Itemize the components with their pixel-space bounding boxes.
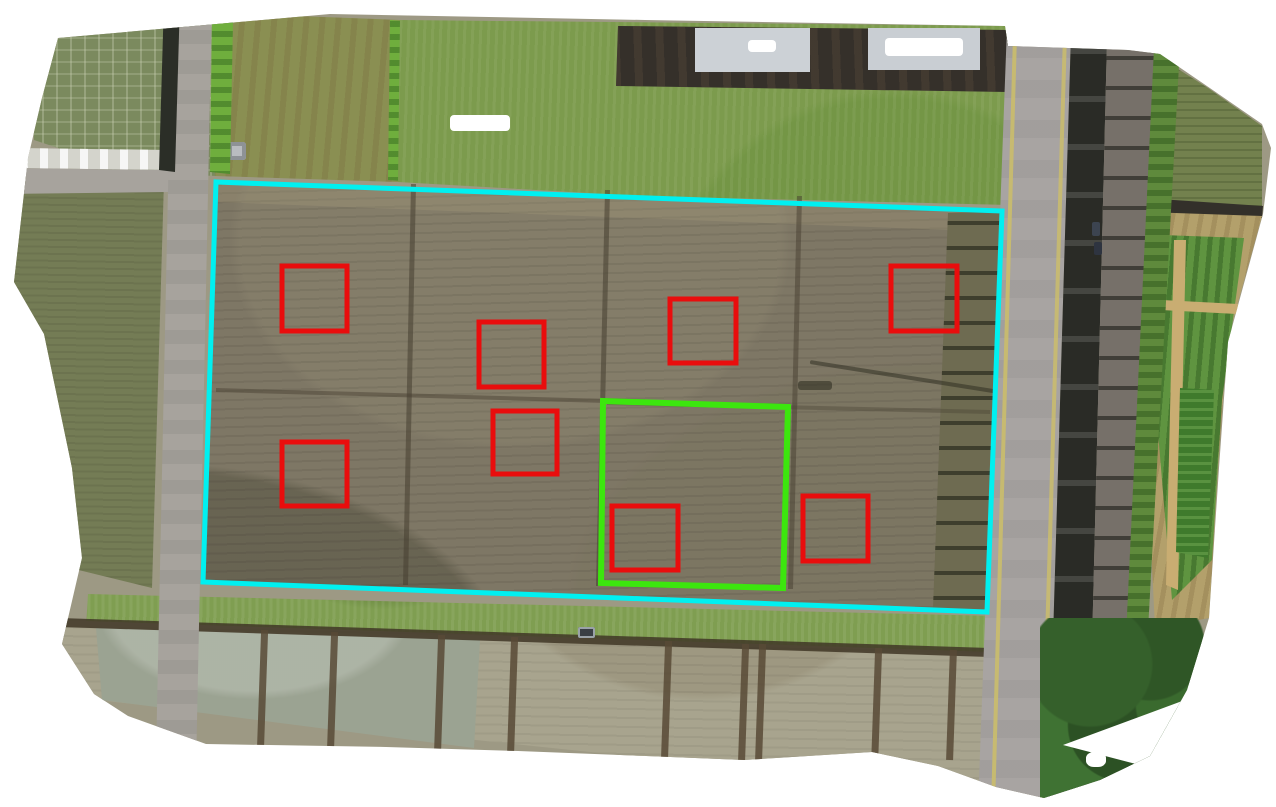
parked-vehicle xyxy=(1092,222,1100,236)
orthomosaic-photo xyxy=(0,0,1276,807)
nodata-hole xyxy=(1086,752,1106,767)
stone-structure xyxy=(228,142,246,160)
parked-vehicle xyxy=(1094,242,1102,255)
roof-highlight xyxy=(748,40,776,52)
utility-pole-shadow xyxy=(798,381,832,390)
screenshot-stage xyxy=(0,0,1276,807)
roof-highlight xyxy=(885,38,963,56)
tree-canopy xyxy=(1040,618,1240,803)
roof-highlight xyxy=(450,115,510,131)
parked-vehicle xyxy=(578,627,595,638)
